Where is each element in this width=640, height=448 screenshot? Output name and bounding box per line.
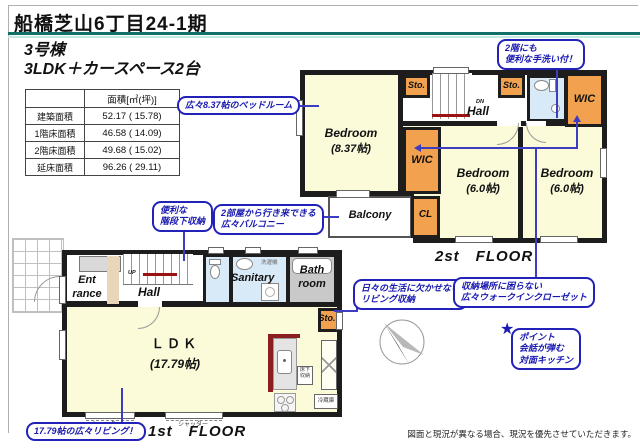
floor2-closet-label: CL: [411, 209, 440, 222]
room-size: (8.37帖): [331, 143, 371, 155]
kitchen-sink-icon: [277, 350, 292, 374]
leader-line: [334, 310, 358, 312]
callout-balcony: 2部屋から行き来できる 広々バルコニー: [213, 204, 324, 235]
room-name: Bedroom: [541, 166, 594, 180]
floor2-balcony-label: Balcony: [330, 209, 410, 223]
floor2-hall-label: Hall: [467, 104, 489, 119]
callout-living: 17.79帖の広々リビング！: [26, 422, 146, 441]
shutter-line: [86, 420, 134, 421]
floor1-up-label: UP: [128, 270, 136, 277]
leader-line: [183, 228, 185, 261]
room-name: ＬＤＫ: [151, 336, 199, 351]
room-name: Bedroom: [457, 166, 510, 180]
area-row-value: 96.26 ( 29.11): [85, 159, 180, 176]
point-star-icon: ★: [500, 319, 514, 339]
callout-point: ポイント 会話が弾む 対面キッチン: [511, 328, 581, 370]
window: [455, 236, 493, 243]
floor1-stairs-rail: [143, 273, 177, 276]
floor2-stairs-rail: [432, 114, 470, 117]
area-row-label: 2階床面積: [26, 142, 85, 159]
callout-living-storage: 日々の生活に欠かせない リビング収納: [353, 279, 468, 310]
underfloor-storage-label: 床下 収納: [297, 368, 313, 379]
page-top-line: [8, 5, 638, 6]
floor2-bedroom-main-label: Bedroom (8.37帖): [303, 126, 399, 157]
floor1-sanitary-label: Sanitary: [231, 272, 274, 286]
leader-line: [121, 388, 123, 424]
leader-line: [556, 64, 558, 118]
shutter-line: [166, 420, 222, 421]
area-row-value: 49.68 ( 15.02): [85, 142, 180, 159]
toilet-icon: [210, 265, 220, 279]
floor1-laundry-label: 洗濯機: [261, 260, 278, 266]
room-name: Bedroom: [325, 126, 378, 140]
floor2-bedroom-center-label: Bedroom (6.0帖): [443, 166, 523, 197]
area-row-label: 1階床面積: [26, 125, 85, 142]
window: [600, 148, 607, 178]
stove-burner-icon: [281, 404, 289, 412]
window: [433, 67, 469, 74]
window: [165, 412, 223, 419]
window: [336, 312, 343, 330]
north-arrow-icon: [378, 318, 426, 366]
unit-label: 3号棟: [24, 41, 65, 61]
floor1-hall-label: Hall: [138, 285, 160, 300]
toilet-tank-icon: [549, 79, 556, 92]
window: [208, 247, 224, 254]
floor2-bedroom-right-label: Bedroom (6.0帖): [527, 166, 607, 197]
area-row-label: 延床面積: [26, 159, 85, 176]
callout-handwash: 2階にも 便利な手洗い付！: [497, 39, 585, 70]
floor2-wic-right-label: WIC: [565, 93, 604, 107]
window: [59, 330, 66, 360]
fridge-label: 冷蔵庫: [314, 398, 338, 404]
washing-machine-drum-icon: [265, 287, 275, 297]
leader-line: [535, 148, 537, 279]
callout-bedroom-main: 広々8.37帖のベッドルーム: [177, 96, 300, 115]
room-size: (17.79帖): [150, 357, 200, 371]
room-size: (6.0帖): [466, 183, 500, 195]
floor1-ldk-label: ＬＤＫ (17.79帖): [110, 334, 240, 374]
floor1-entrance-label: Ent rance: [66, 274, 108, 302]
floor1-bath-label: Bath room: [292, 264, 332, 292]
balcony-door-window: [336, 190, 370, 198]
area-row-label: 建築面積: [26, 108, 85, 125]
layout-label: 3LDK＋カースペース2台: [24, 60, 200, 80]
room-size: (6.0帖): [550, 183, 584, 195]
arrow-up-icon: [573, 115, 581, 122]
stove-burner-icon: [277, 396, 285, 404]
callout-wic: 収納場所に困らない 広々ウォークインクローゼット: [453, 277, 595, 308]
window: [85, 412, 135, 419]
kitchen-faucet-icon: [283, 359, 286, 362]
washbasin-icon: [236, 258, 253, 270]
area-row-value: 52.17 ( 15.78): [85, 108, 180, 125]
leader-line: [576, 122, 578, 149]
stove-burner-icon: [286, 396, 294, 404]
area-table-header: 面積[㎡(坪)]: [85, 90, 180, 108]
floorplan-flyer: 船橋芝山6丁目24-1期 3号棟 3LDK＋カースペース2台 面積[㎡(坪)] …: [0, 0, 640, 448]
area-table: 面積[㎡(坪)] 建築面積 52.17 ( 15.78) 1階床面積 46.58…: [25, 89, 180, 176]
area-row-value: 46.58 ( 14.09): [85, 125, 180, 142]
entrance-door-opening: [59, 276, 66, 304]
floor1-label: 1st FLOOR: [148, 423, 246, 442]
floor2-storage1-label: Sto.: [403, 80, 430, 91]
floor2-wic-mid-label: WIC: [403, 154, 441, 168]
floor2-storage2-label: Sto.: [498, 80, 525, 91]
floor2-label: 2st FLOOR: [435, 248, 533, 267]
toilet-icon: [534, 80, 549, 91]
pantry-closet: [321, 340, 337, 390]
window: [540, 236, 578, 243]
area-table-corner: [26, 90, 85, 108]
window: [298, 247, 318, 254]
title-underline-light: [8, 36, 640, 38]
entrance-step: [107, 256, 119, 304]
page-left-line: [8, 5, 9, 433]
floor2-stairs: [432, 73, 472, 119]
disclaimer: 図面と現況が異なる場合、現況を優先させていただきます。: [404, 428, 636, 440]
arrow-left-icon: [414, 144, 421, 152]
window: [245, 247, 261, 254]
title-underline: [8, 32, 640, 35]
leader-line: [421, 147, 578, 149]
callout-stair-storage: 便利な 階段下収納: [152, 201, 213, 232]
